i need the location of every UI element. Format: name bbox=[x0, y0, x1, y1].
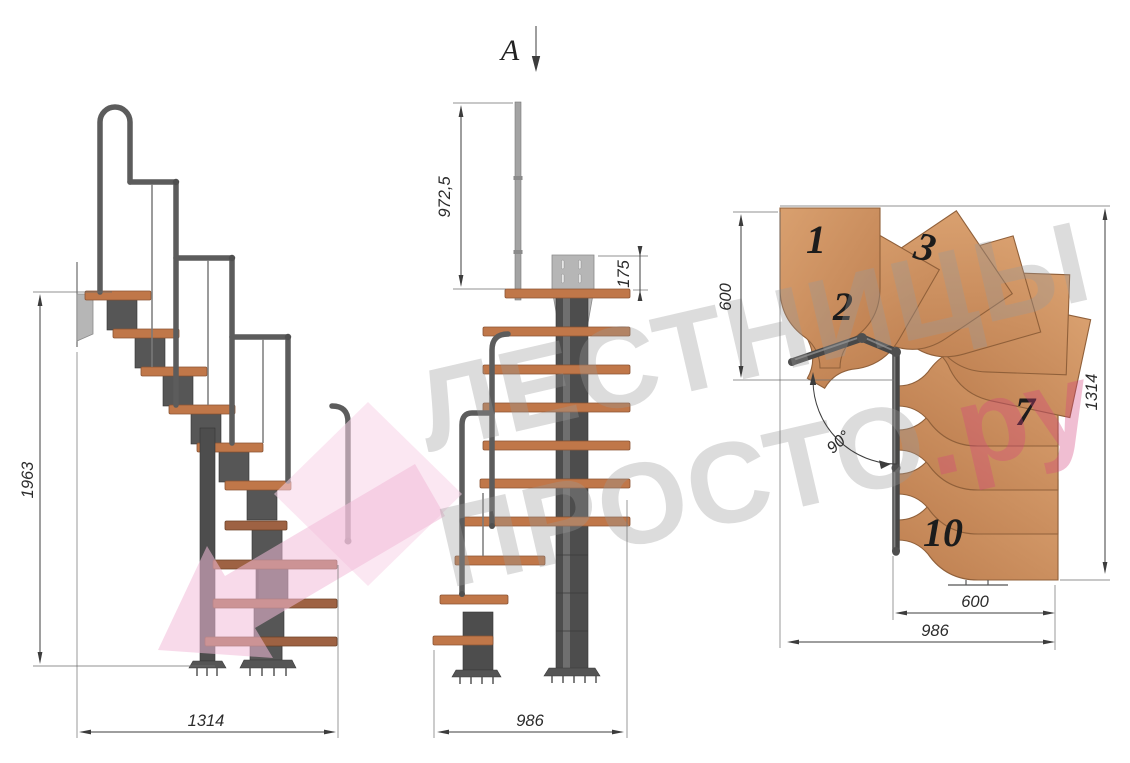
front-lower-module bbox=[452, 612, 501, 684]
section-arrow-icon bbox=[532, 56, 540, 72]
dim-plan-total-width: 986 bbox=[787, 622, 1055, 644]
dim-plan-length-label: 1314 bbox=[1083, 374, 1101, 411]
handrail-loop bbox=[100, 107, 130, 292]
dim-side-run-label: 1314 bbox=[188, 712, 225, 730]
side-upper-flight bbox=[85, 291, 291, 520]
dim-plan-flight-width-label: 600 bbox=[717, 282, 735, 310]
dim-plan-total-width-label: 986 bbox=[921, 622, 949, 640]
section-label: A bbox=[499, 34, 520, 67]
dim-plan-tread-width-label: 600 bbox=[961, 593, 989, 611]
staircase-drawing: 1 2 3 7 10 ЛЕСТНИЦЫ ПРОСТО.ру A 1963 1 bbox=[0, 0, 1130, 763]
dim-front-rail-height: 972,5 bbox=[436, 103, 513, 289]
dim-front-width-label: 986 bbox=[516, 712, 544, 730]
floor-bracket bbox=[948, 580, 1008, 585]
dim-side-height-label: 1963 bbox=[19, 461, 37, 499]
dim-front-plate-label: 175 bbox=[615, 259, 633, 287]
dim-front-rail-height-label: 972,5 bbox=[436, 176, 454, 218]
handrail-post bbox=[515, 102, 521, 300]
drawing-canvas: 1 2 3 7 10 ЛЕСТНИЦЫ ПРОСТО.ру A 1963 1 bbox=[0, 0, 1130, 763]
section-marker: A bbox=[499, 26, 540, 72]
step-number-10: 10 bbox=[923, 510, 963, 555]
wall-bracket bbox=[77, 294, 93, 341]
